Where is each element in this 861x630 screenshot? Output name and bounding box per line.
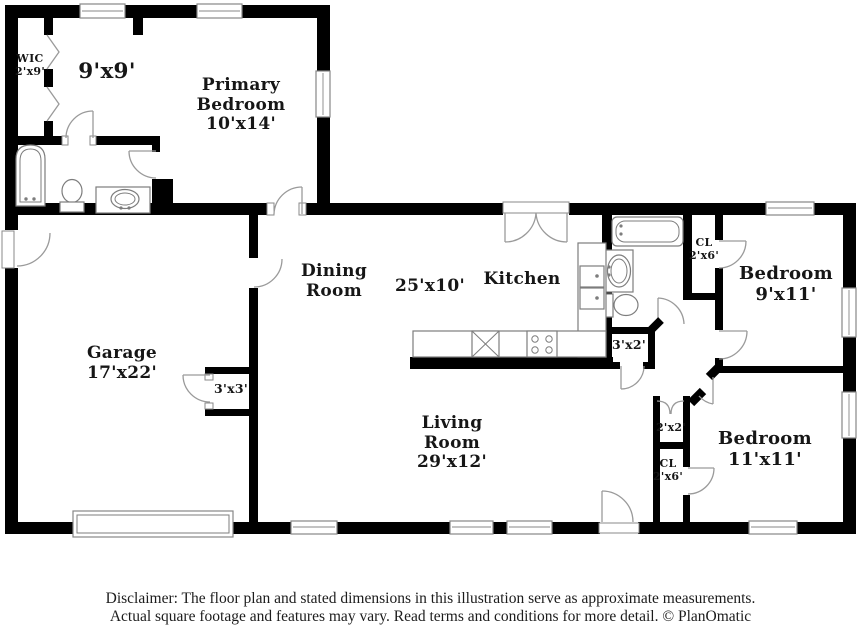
disclaimer-text: Disclaimer: The floor plan and stated di… [0,590,861,627]
french-doors-icon [503,202,569,242]
room-label-closet-top: CL 2'x6' [689,237,719,263]
room-label-dining-room: Dining Room [301,262,367,301]
door-swing-icon [183,374,213,409]
door-swing-icon [719,331,747,359]
room-label-closet-2x2: 2'x2' [656,422,686,435]
room-label-bedroom-11x11: Bedroom 11'x11' [718,429,812,471]
toilet-icon [604,294,638,317]
bathtub-icon [612,217,683,246]
door-swing-icon [621,366,644,389]
room-label-kitchen: Kitchen [483,270,560,290]
window-icon [80,4,125,18]
bifold-door-icon [657,401,684,414]
door-swing-icon [651,298,684,330]
door-swing-icon [267,187,306,215]
window-icon [197,4,242,18]
fixtures [16,145,683,357]
door-swing-icon [599,491,639,533]
window-icon [842,392,856,438]
window-icon [316,71,330,117]
window-icon [766,202,814,215]
door-swing-icon [688,468,714,494]
door-swing-icon [129,151,156,178]
window-icon [450,521,493,534]
dishwasher-icon [472,331,499,357]
room-label-garage: Garage 17'x22' [87,344,157,383]
door-swing-icon [254,259,282,287]
room-label-closet-3x3: 3'x3' [214,382,248,397]
door-swing-icon [2,231,50,268]
window-icon [749,521,797,534]
room-label-closet-bottom: CL 2'x6' [653,458,683,484]
floor-plan: WIC 2'x9' 9'x9' Primary Bedroom 10'x14' … [0,0,861,630]
room-label-dressing: 9'x9' [78,60,135,85]
door-swing-icon [62,111,96,145]
kitchen-counter [413,243,606,357]
window-icon [507,521,552,534]
room-label-living-room: Living Room 29'x12' [417,414,487,473]
sink-icon [96,187,150,213]
window-icon [291,521,337,534]
window-icon [842,288,856,337]
bathtub-icon [16,145,45,206]
room-label-linen-3x2: 3'x2' [612,338,646,353]
stove-icon [527,331,557,357]
doors [2,35,747,533]
room-label-wic: WIC 2'x9' [15,53,45,79]
sink-icon [604,250,633,292]
garage-door [73,511,233,537]
room-label-primary-bedroom: Primary Bedroom 10'x14' [197,76,286,135]
floor-plan-drawing [0,0,861,630]
room-label-dining-dims: 25'x10' [395,277,465,297]
toilet-icon [60,180,84,213]
room-label-bedroom-9x11: Bedroom 9'x11' [739,264,833,306]
